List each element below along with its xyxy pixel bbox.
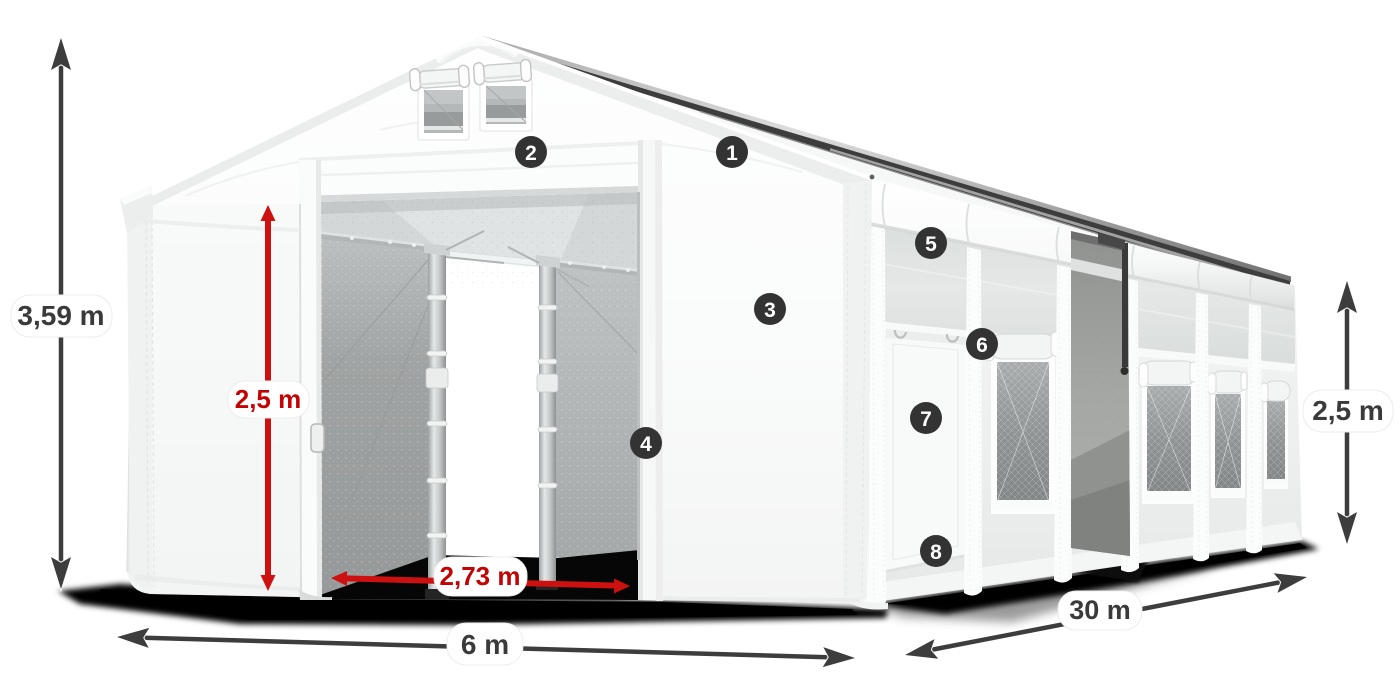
svg-text:4: 4	[640, 433, 652, 456]
svg-text:2,5 m: 2,5 m	[1312, 395, 1384, 426]
svg-text:5: 5	[925, 233, 937, 256]
svg-text:3,59 m: 3,59 m	[17, 300, 104, 331]
svg-text:2,5 m: 2,5 m	[235, 384, 302, 414]
svg-text:1: 1	[726, 142, 738, 165]
svg-text:2: 2	[525, 142, 537, 165]
svg-text:6: 6	[976, 334, 988, 357]
svg-text:2,73 m: 2,73 m	[440, 561, 521, 591]
svg-text:6 m: 6 m	[461, 629, 509, 660]
svg-text:7: 7	[920, 408, 932, 431]
svg-text:8: 8	[930, 541, 942, 564]
svg-text:30 m: 30 m	[1069, 595, 1131, 625]
svg-text:3: 3	[764, 299, 776, 322]
